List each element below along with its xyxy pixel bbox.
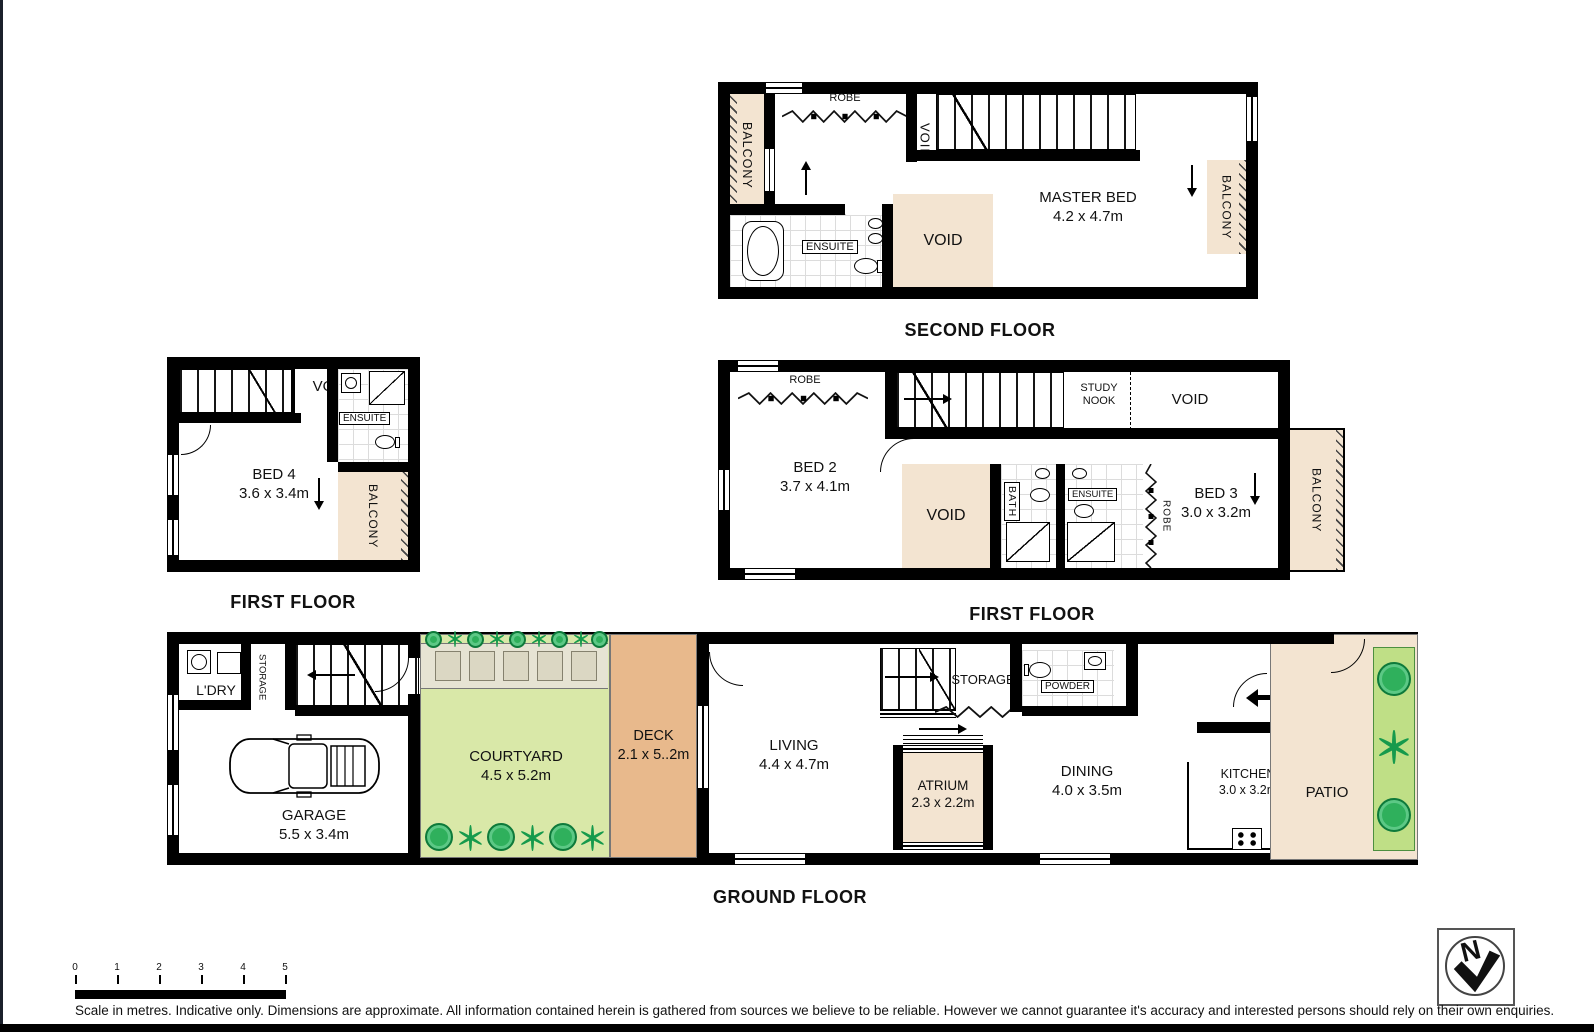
shower: [1067, 522, 1115, 562]
room-dims: 4.5 x 5.2m: [451, 766, 581, 785]
room-dims: 4.4 x 4.7m: [734, 755, 854, 774]
window: [718, 470, 730, 510]
scale-tick-4: 4: [238, 962, 248, 973]
balcony-hatch: [401, 472, 408, 560]
toilet-cistern: [395, 437, 400, 448]
basin: [868, 233, 883, 244]
plant-bush: [487, 823, 515, 851]
stove: [1232, 828, 1262, 850]
scale-tick-2: 2: [154, 962, 164, 973]
basin: [868, 218, 883, 229]
plant-bush: [425, 631, 442, 648]
wall: [1056, 464, 1065, 568]
wall: [882, 204, 893, 287]
room-name: DECK: [618, 727, 690, 746]
plant-bush: [509, 631, 526, 648]
window: [167, 785, 179, 835]
scale-bar-fill: [75, 990, 286, 999]
plant-bush: [425, 823, 453, 851]
storage-label: STORAGE: [257, 654, 268, 700]
toilet: [375, 435, 395, 449]
robe-zigzag: [782, 110, 907, 123]
plant-flower: [519, 825, 545, 851]
basin: [1072, 468, 1087, 479]
stairs-diagonal: [896, 372, 966, 428]
wall: [1270, 632, 1334, 644]
toilet: [1030, 488, 1050, 502]
robe-zigzag-vertical: [1145, 464, 1157, 568]
stairs-arrow: [315, 674, 355, 676]
tick-mark: [285, 975, 287, 984]
robe-zigzag: [738, 392, 868, 405]
basin: [341, 373, 361, 393]
wall: [292, 369, 295, 413]
ground-floor-title: GROUND FLOOR: [640, 887, 940, 908]
balcony-label: BALCONY: [366, 484, 380, 548]
tick-mark: [243, 975, 245, 984]
stairs-up-arrow: [805, 169, 807, 195]
ensuite-label: ENSUITE: [339, 412, 390, 425]
window: [903, 745, 983, 753]
powder-label: POWDER: [1041, 680, 1094, 693]
shower: [369, 371, 405, 405]
wall: [285, 644, 295, 710]
balcony-arrow: [318, 478, 320, 502]
disclaimer-text: Scale in metres. Indicative only. Dimens…: [75, 1003, 1585, 1018]
wall: [697, 788, 709, 853]
wall: [408, 644, 420, 658]
plant-bush: [1377, 798, 1411, 832]
wall: [179, 700, 241, 710]
room-name: MASTER BED: [1030, 188, 1146, 207]
atrium-room: ATRIUM 2.3 x 2.2m: [903, 777, 983, 812]
atrium: ATRIUM 2.3 x 2.2m: [893, 745, 993, 850]
plant-bush: [549, 823, 577, 851]
toilet: [854, 258, 878, 274]
wall: [1022, 706, 1126, 716]
plant-flower: [531, 631, 547, 647]
robe-label: ROBE: [770, 374, 840, 387]
balcony-label: BALCONY: [1220, 175, 1234, 239]
window: [697, 706, 709, 788]
wall: [179, 413, 301, 423]
basin: [1084, 652, 1106, 670]
plant-flower: [573, 631, 589, 647]
wall: [730, 204, 845, 215]
first-floor-left-plan: VOID ENSUITE BED 4 3.6 x 3.4m BALCONY: [167, 357, 420, 572]
tick-mark: [75, 975, 77, 984]
wall: [1126, 644, 1138, 716]
second-void-stairs: VOID: [916, 98, 934, 183]
courtyard: COURTYARD 4.5 x 5.2m: [420, 634, 610, 858]
study-nook-label: STUDY NOOK: [1070, 382, 1128, 407]
room-dims: 3.7 x 4.1m: [755, 477, 875, 496]
wall: [764, 94, 775, 149]
divider-dashed: [1130, 372, 1131, 430]
bed4-room: BED 4 3.6 x 3.4m: [214, 465, 334, 503]
bath-label: BATH: [1004, 482, 1020, 521]
room-name: PATIO: [1283, 783, 1371, 802]
ground-floor-plan: L'DRY STORAGE GARAGE 5.5 x 3.4m: [167, 632, 1418, 865]
window: [745, 568, 795, 580]
balcony-hatch: [1336, 430, 1343, 570]
scale-tick-1: 1: [112, 962, 122, 973]
bed3-balcony: BALCONY: [1288, 428, 1345, 572]
plant-flower: [447, 631, 463, 647]
patio-room: PATIO: [1283, 783, 1371, 802]
wall: [1010, 644, 1022, 712]
bathtub: [742, 221, 784, 281]
scale-tick-0: 0: [70, 962, 80, 973]
storage-left: STORAGE: [253, 646, 271, 708]
wall: [906, 150, 1140, 161]
paver: [503, 651, 529, 681]
balcony-hatch: [1239, 160, 1246, 254]
room-name: GARAGE: [249, 806, 379, 825]
room-dims: 4.2 x 4.7m: [1030, 207, 1146, 226]
room-dims: 5.5 x 3.4m: [249, 825, 379, 844]
plant-flower: [1377, 730, 1411, 764]
floorplan-page: BALCONY ROBE VOID MASTER BED 4.2 x 4.7m …: [0, 0, 1594, 1032]
toilet-cistern: [877, 260, 883, 273]
room-name: COURTYARD: [451, 747, 581, 766]
ensuite-label: ENSUITE: [1068, 488, 1117, 501]
courtyard-room: COURTYARD 4.5 x 5.2m: [451, 747, 581, 785]
toilet-cistern: [1024, 664, 1029, 676]
wall: [327, 369, 338, 462]
void-label: VOID: [926, 507, 965, 525]
car-icon: [227, 732, 382, 800]
balcony-arrow: [1254, 473, 1256, 497]
shower: [1006, 522, 1050, 562]
wall: [1035, 428, 1278, 439]
void-label: VOID: [1150, 390, 1230, 409]
ensuite-label: ENSUITE: [802, 240, 858, 254]
first-floor-right-title: FIRST FLOOR: [882, 604, 1182, 625]
window: [764, 149, 775, 191]
compass-arrow: [1448, 940, 1506, 998]
room-name: BED 4: [214, 465, 334, 484]
balcony-label: BALCONY: [1310, 468, 1324, 532]
void-label: VOID: [923, 232, 962, 250]
plant-bush: [591, 631, 608, 648]
stairs-arrow: [885, 676, 931, 678]
window: [167, 520, 179, 555]
bottom-bar: [0, 1024, 1594, 1032]
second-balcony-right: BALCONY: [1207, 160, 1246, 254]
scale-bar: 0 1 2 3 4 5: [65, 962, 325, 1004]
plant-flower: [457, 825, 483, 851]
plant-bush: [551, 631, 568, 648]
dining-room: DINING 4.0 x 3.5m: [1027, 762, 1147, 800]
second-void: VOID: [893, 194, 993, 287]
living-room: LIVING 4.4 x 4.7m: [734, 736, 854, 774]
window: [903, 842, 983, 850]
tick-mark: [117, 975, 119, 984]
window: [735, 853, 805, 865]
room-name: ATRIUM: [903, 777, 983, 794]
left-edge-line: [0, 0, 3, 1032]
tick-mark: [159, 975, 161, 984]
patio: PATIO: [1270, 634, 1418, 860]
atrium-rail: [903, 735, 983, 744]
balcony-label: BALCONY: [740, 122, 754, 189]
stairs-arrow: [904, 398, 944, 400]
garage-room: GARAGE 5.5 x 3.4m: [249, 806, 379, 844]
scale-tick-3: 3: [196, 962, 206, 973]
plant-bush: [1377, 662, 1411, 696]
wall: [408, 694, 420, 853]
laundry-bench: [217, 652, 241, 674]
room-name: DINING: [1027, 762, 1147, 781]
patio-garden: [1373, 647, 1415, 851]
living-door-arc: [709, 652, 743, 686]
room-dims: 2.1 x 5..2m: [618, 746, 690, 765]
stairs-diagonal: [234, 369, 292, 413]
second-floor-title: SECOND FLOOR: [830, 320, 1130, 341]
first-void: VOID: [902, 464, 990, 568]
bed2-room: BED 2 3.7 x 4.1m: [755, 458, 875, 496]
wall: [338, 462, 408, 472]
room-dims: 3.0 x 3.2m: [1160, 503, 1272, 522]
second-floor-plan: BALCONY ROBE VOID MASTER BED 4.2 x 4.7m …: [718, 82, 1258, 299]
scale-tick-5: 5: [280, 962, 290, 973]
window: [167, 455, 179, 495]
room-name: BED 2: [755, 458, 875, 477]
window: [1040, 853, 1110, 865]
window: [167, 695, 179, 750]
first-floor-left-title: FIRST FLOOR: [143, 592, 443, 613]
deck: DECK 2.1 x 5..2m: [610, 634, 697, 858]
bed4-balcony: BALCONY: [338, 472, 408, 560]
wall: [885, 372, 896, 430]
balcony-arrow: [1191, 165, 1193, 189]
balcony-hatch: [730, 94, 737, 216]
plant-flower: [489, 631, 505, 647]
bed4-door-arc: [181, 425, 211, 455]
room-dims: 2.3 x 2.2m: [903, 794, 983, 811]
window: [738, 360, 778, 372]
bath-label-text: BATH: [1006, 486, 1018, 517]
garden-bed: [421, 643, 608, 689]
stairs-diagonal: [936, 94, 1006, 150]
wall: [990, 464, 1001, 568]
room-name: LIVING: [734, 736, 854, 755]
north-compass: N: [1437, 928, 1515, 1006]
toilet: [1029, 662, 1051, 678]
paver: [469, 651, 495, 681]
window: [1246, 97, 1258, 141]
first-floor-right-plan: ROBE BED 2 3.7 x 4.1m STUDY NOOK VOID VO…: [718, 360, 1290, 580]
laundry-sink: [187, 650, 211, 674]
robe-label: ROBE: [785, 92, 905, 105]
atrium-arrow: [919, 728, 959, 730]
paver: [435, 651, 461, 681]
tick-mark: [201, 975, 203, 984]
paver: [537, 651, 563, 681]
window: [766, 82, 802, 94]
wall: [241, 644, 251, 710]
basin: [1035, 468, 1050, 479]
toilet: [1074, 504, 1094, 518]
plant-flower: [579, 825, 605, 851]
wall: [697, 644, 709, 706]
second-balcony-left: BALCONY: [730, 94, 764, 216]
deck-room: DECK 2.1 x 5..2m: [618, 727, 690, 764]
master-bed-room: MASTER BED 4.2 x 4.7m: [1030, 188, 1146, 226]
plant-bush: [467, 631, 484, 648]
paver: [571, 651, 597, 681]
room-dims: 4.0 x 3.5m: [1027, 781, 1147, 800]
patio-door-arc: [1331, 639, 1365, 673]
